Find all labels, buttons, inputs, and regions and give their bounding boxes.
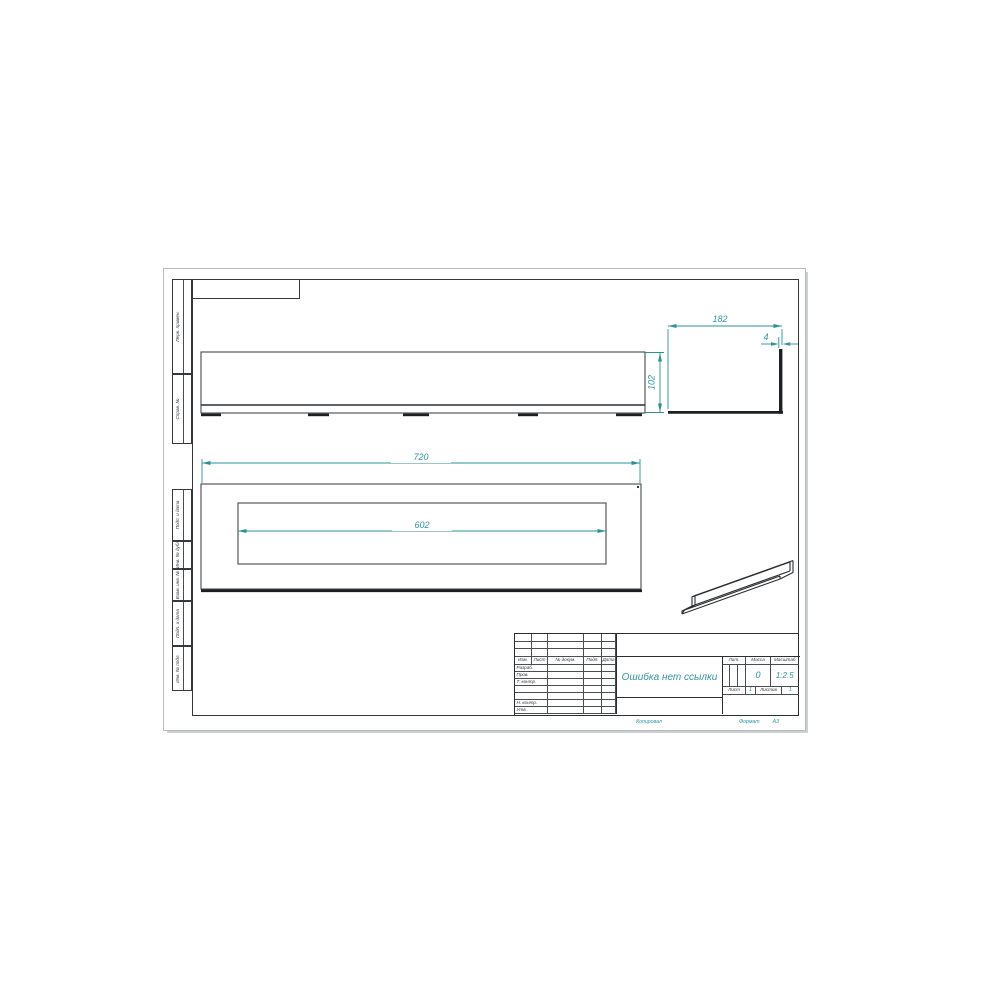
grid-cell	[584, 679, 602, 686]
grid-cell	[584, 686, 602, 693]
dim-102: 102	[647, 363, 658, 403]
front-view-feet	[201, 414, 642, 417]
grid-cell	[602, 642, 616, 650]
row-razrab: Разраб.	[515, 665, 548, 672]
grid-cell	[602, 707, 616, 714]
row-prov: Пров.	[515, 672, 548, 679]
organization-cell-left	[616, 697, 722, 714]
col-header-docnum: № докум.	[548, 657, 584, 665]
scale-label: Масштаб	[771, 657, 799, 664]
grid-cell	[548, 693, 584, 700]
grid-cell	[548, 642, 584, 650]
sheets-value: 1	[782, 687, 799, 694]
grid-cell	[602, 649, 616, 657]
dim-182: 182	[690, 314, 750, 325]
mass-label: Масса	[746, 657, 771, 664]
corner-dot	[637, 486, 639, 488]
format-label: Формат	[739, 719, 760, 725]
row-empty-2	[515, 693, 548, 700]
grid-cell	[602, 686, 616, 693]
sheet-label: Лист	[723, 687, 746, 694]
grid-cell	[548, 707, 584, 714]
sheets-label: Листов	[756, 687, 782, 694]
grid-cell	[548, 672, 584, 679]
grid-cell	[584, 649, 602, 657]
grid-cell	[532, 634, 548, 642]
lit-cell	[730, 665, 737, 686]
format-block: Формат А3	[739, 719, 779, 725]
row-tkontr: Т. контр.	[515, 679, 548, 686]
grid-cell	[548, 649, 584, 657]
grid-cell	[584, 707, 602, 714]
copied-label: Копировал	[594, 719, 704, 725]
col-header-izm: Изм.	[515, 657, 532, 665]
mass-value: 0	[746, 665, 771, 686]
format-value: А3	[773, 719, 779, 725]
grid-cell	[602, 693, 616, 700]
title-block-right: Лит. Масса Масштаб 0 1:2.5 Лист 1 Листов…	[722, 657, 799, 714]
lit-label: Лит.	[723, 657, 746, 664]
grid-cell	[584, 700, 602, 707]
grid-cell	[584, 642, 602, 650]
grid-cell	[602, 672, 616, 679]
grid-cell	[584, 693, 602, 700]
grid-cell	[548, 700, 584, 707]
isometric-view	[682, 561, 793, 615]
row-empty-1	[515, 686, 548, 693]
grid-cell	[548, 665, 584, 672]
grid-cell	[584, 672, 602, 679]
grid-cell	[602, 700, 616, 707]
lit-cell	[738, 665, 745, 686]
lit-cell	[723, 665, 730, 686]
grid-cell	[602, 679, 616, 686]
row-utv: Утв.	[515, 707, 548, 714]
document-name: Ошибка нет ссылки	[616, 657, 722, 697]
grid-cell	[548, 634, 584, 642]
dim-720: 720	[391, 452, 451, 463]
grid-cell	[584, 665, 602, 672]
lit-cells	[723, 665, 746, 686]
title-block: Изм. Лист № докум. Подп. Дата Разраб. Пр…	[514, 633, 799, 716]
col-header-podp: Подп.	[584, 657, 602, 665]
grid-cell	[532, 649, 548, 657]
front-view-outline	[201, 352, 645, 413]
grid-cell	[602, 665, 616, 672]
dim-4: 4	[756, 332, 776, 343]
sheet-value: 1	[746, 687, 756, 694]
scale-value: 1:2.5	[771, 665, 799, 686]
col-header-data: Дата	[602, 657, 616, 665]
grid-cell	[515, 649, 532, 657]
grid-cell	[532, 642, 548, 650]
col-header-list: Лист	[532, 657, 548, 665]
grid-cell	[548, 679, 584, 686]
drawing-sheet: Перв. примен. Справ. № Подп. и дата Инв.…	[163, 268, 806, 731]
page: { "sheet": { "copied_label": "Копировал"…	[0, 0, 1000, 1000]
grid-cell	[584, 634, 602, 642]
organization-cell-right	[723, 695, 799, 713]
designation-cell	[616, 634, 800, 657]
grid-cell	[515, 642, 532, 650]
title-block-left-table: Изм. Лист № докум. Подп. Дата Разраб. Пр…	[515, 634, 616, 714]
grid-cell	[602, 634, 616, 642]
row-nkontr: Н. контр.	[515, 700, 548, 707]
grid-cell	[548, 686, 584, 693]
dim-602: 602	[392, 520, 452, 531]
grid-cell	[515, 634, 532, 642]
top-view-opening	[238, 503, 606, 564]
